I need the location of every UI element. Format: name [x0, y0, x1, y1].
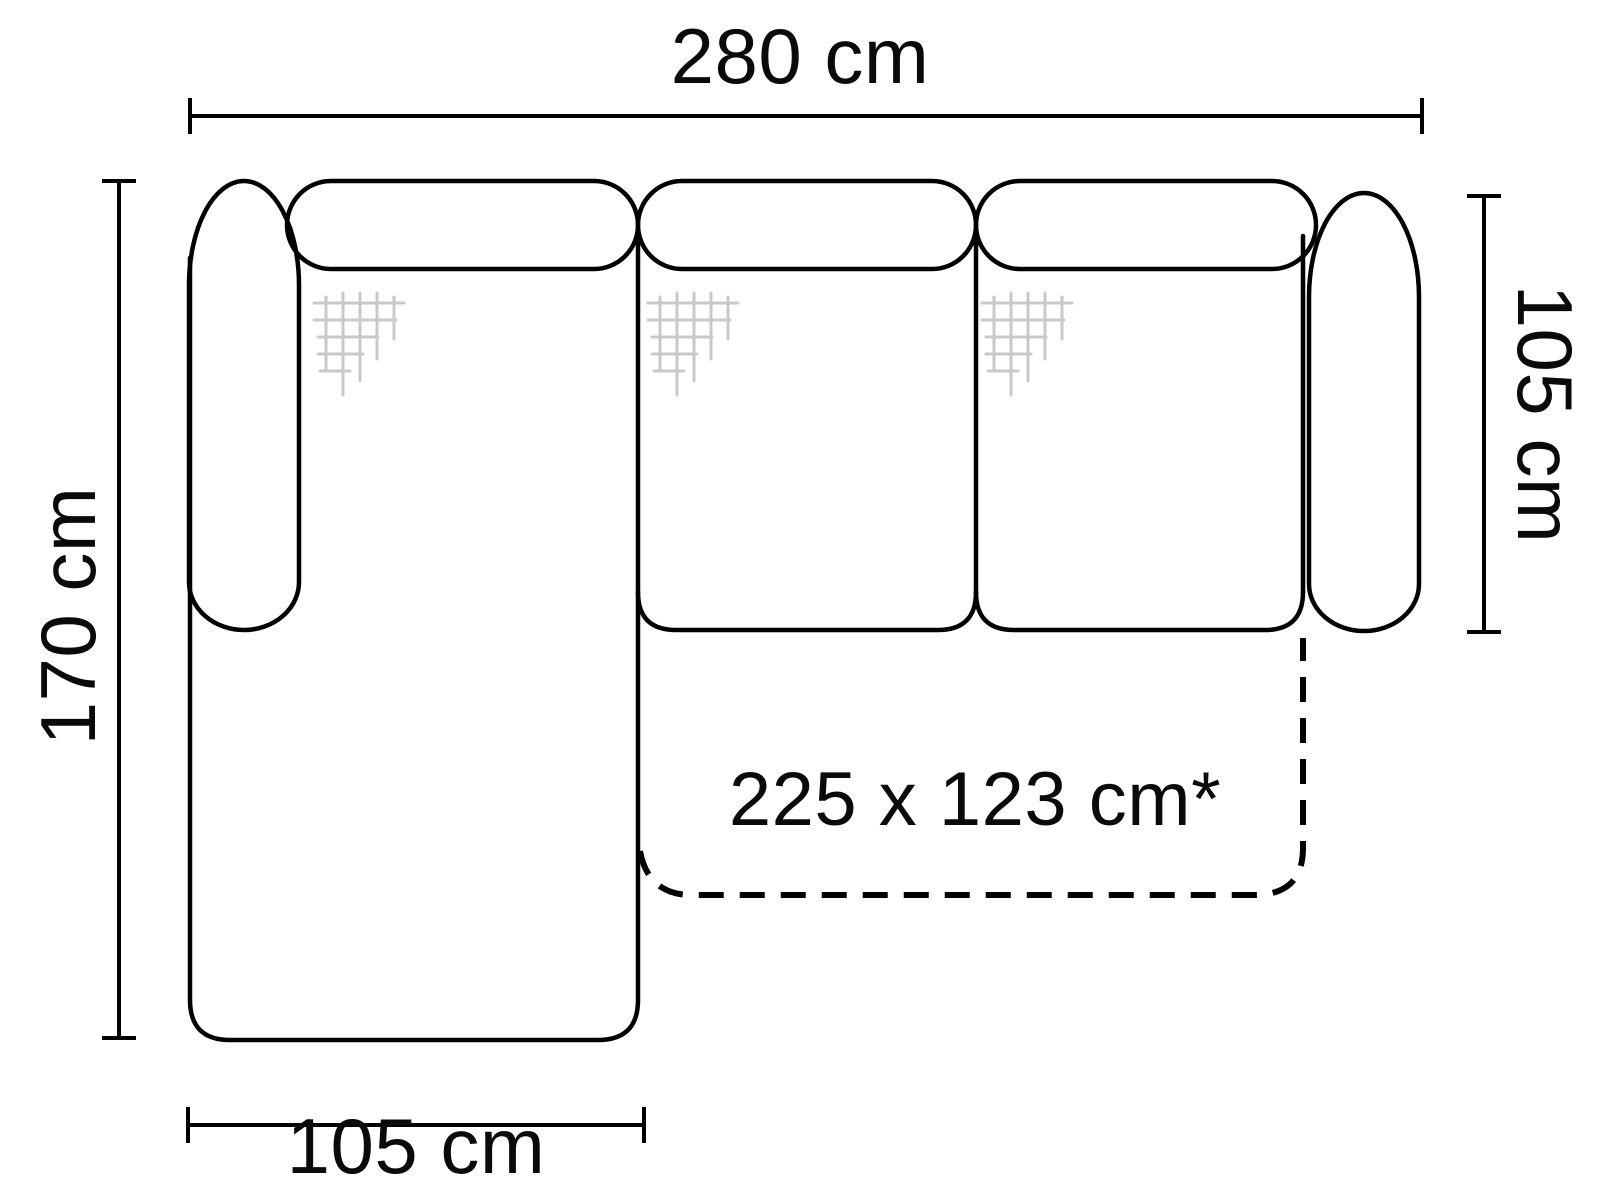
sleeping-area-label: 225 x 123 cm*	[729, 762, 1221, 838]
sofa-depth-label: 105 cm	[1506, 285, 1584, 544]
left-armrest	[189, 181, 299, 630]
right-seat-bottom-edge	[976, 592, 1303, 630]
chaise-depth-label: 170 cm	[29, 487, 107, 746]
right-armrest	[1309, 193, 1419, 631]
back-cushion-left	[287, 181, 638, 269]
top-dimension-line	[190, 98, 1422, 134]
middle-seat-bottom-edge	[638, 592, 976, 630]
fabric-texture-icon	[648, 293, 738, 395]
right-dimension-line	[1467, 196, 1501, 632]
back-cushion-center	[638, 181, 976, 269]
sofa-dimension-diagram: 280 cm 170 cm 105 cm 105 cm 225 x 123 cm…	[0, 0, 1598, 1193]
sofa-line-art	[0, 0, 1598, 1193]
back-cushion-right	[976, 181, 1316, 269]
chaise-width-label: 105 cm	[287, 1107, 546, 1185]
total-width-label: 280 cm	[671, 17, 930, 95]
chaise-section-outline	[190, 236, 638, 1040]
fabric-texture-icon	[982, 293, 1072, 395]
fabric-texture-icon	[314, 293, 404, 395]
